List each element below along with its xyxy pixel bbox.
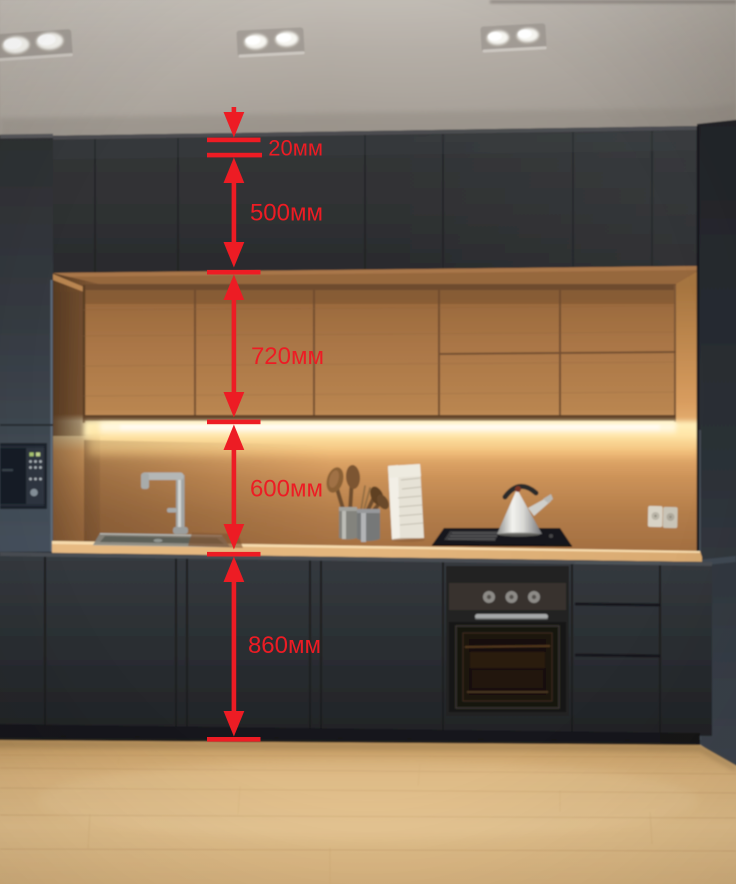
svg-text:720мм: 720мм bbox=[251, 343, 324, 370]
svg-text:500мм: 500мм bbox=[250, 200, 323, 227]
svg-text:600мм: 600мм bbox=[250, 476, 323, 503]
svg-text:20мм: 20мм bbox=[268, 136, 323, 161]
svg-text:860мм: 860мм bbox=[248, 632, 321, 659]
